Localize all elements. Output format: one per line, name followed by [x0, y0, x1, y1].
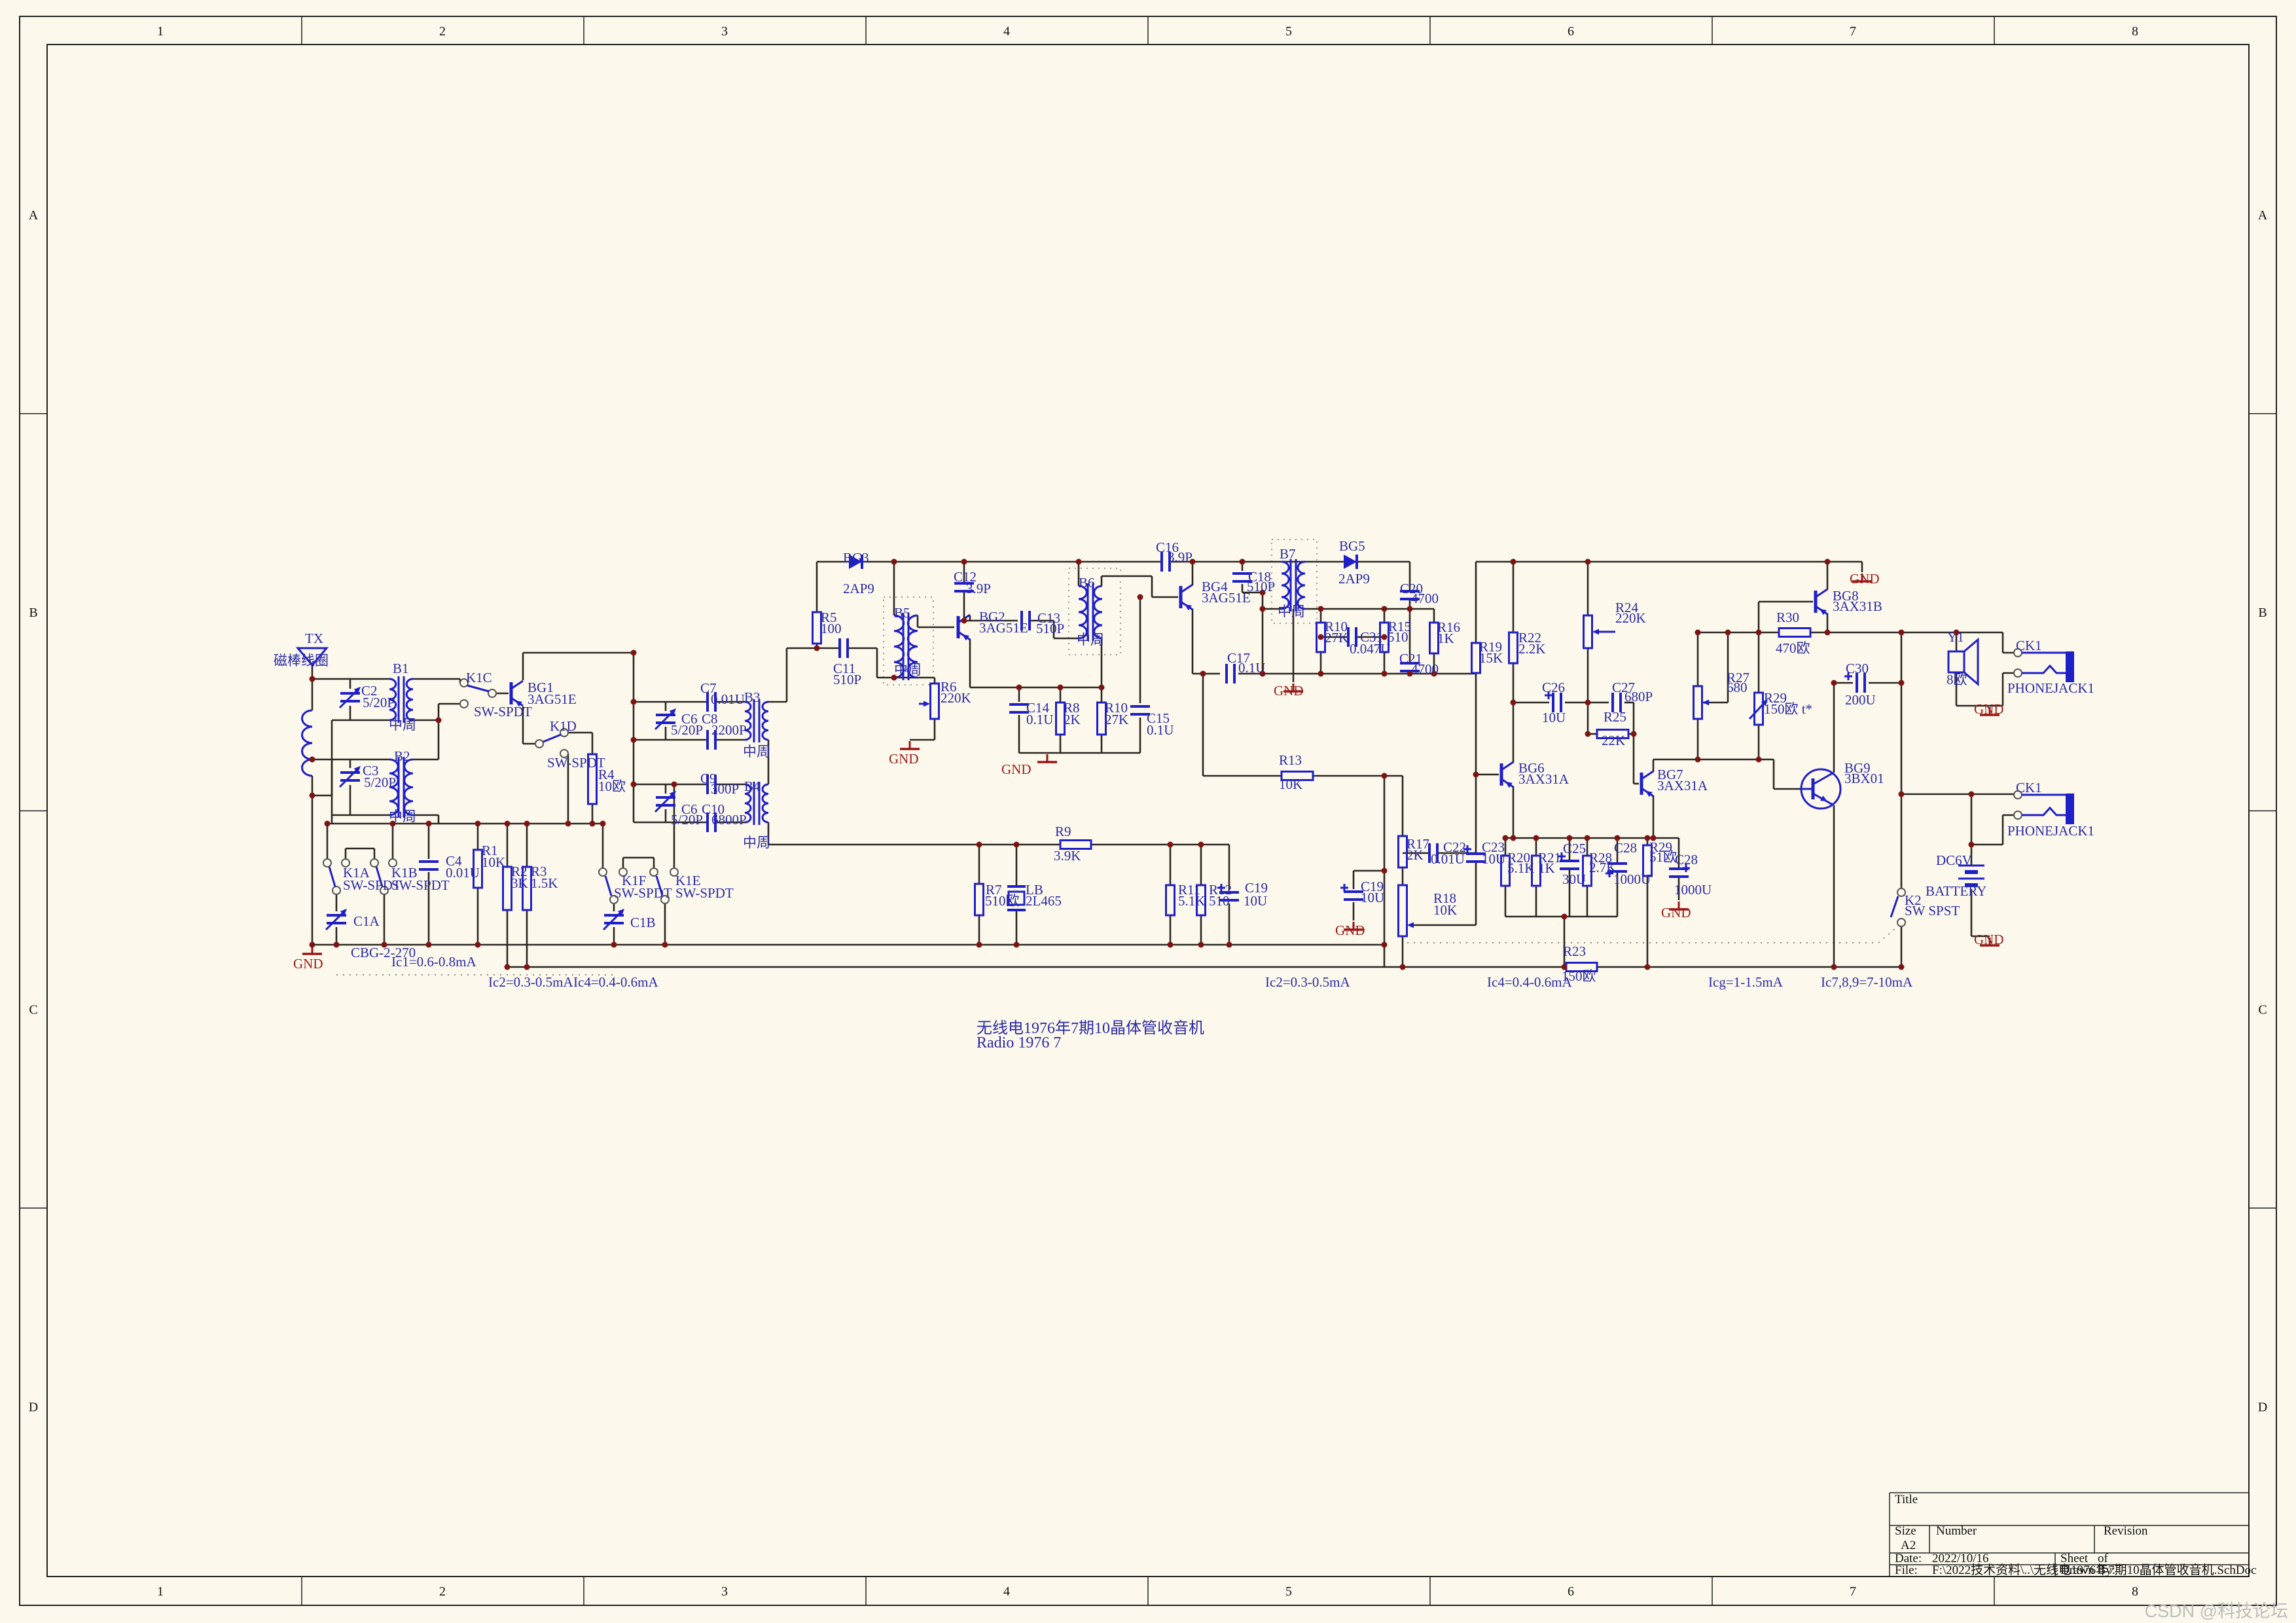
label-1000u-166: 1000U	[1613, 871, 1651, 887]
label-2k-134: 2K	[1407, 847, 1424, 863]
label-b7-91: B7	[1280, 546, 1296, 562]
label-22k-152: 22K	[1602, 733, 1625, 748]
label-中周-56: 中周	[743, 835, 770, 850]
title-block: Title Size A2 Number Revision Date: 2022…	[1895, 1493, 2257, 1577]
label-1k-107: 1K	[1437, 630, 1454, 646]
titleblock-revision-label: Revision	[2104, 1524, 2148, 1538]
label-5-1k-119: 5.1K	[1178, 893, 1205, 909]
zone-col-3: 3	[721, 24, 728, 39]
zone-col-bottom-2: 2	[439, 1584, 446, 1599]
zone-col-8: 8	[2132, 24, 2138, 39]
label-r25-151: R25	[1604, 709, 1626, 725]
label-8欧-186: 8欧	[1946, 672, 1967, 687]
zone-col-bottom-1: 1	[157, 1584, 164, 1599]
label-ic4-0-4-0-6ma-125: Ic4=0.4-0.6mA	[1487, 974, 1572, 990]
zone-row-B: B	[29, 606, 37, 620]
label-10u-131: 10U	[1361, 890, 1384, 905]
label-150欧-127: 150欧	[1562, 968, 1596, 984]
label-3ag51e-69: 3AG51E	[979, 620, 1028, 636]
label-3ag51e-9: 3AG51E	[528, 691, 577, 707]
label-中周-64: 中周	[894, 662, 922, 678]
label-2ap9-94: 2AP9	[1338, 571, 1370, 587]
label-ic2-0-3-0-5ma-124: Ic2=0.3-0.5mA	[1265, 974, 1350, 990]
label-k1d-10: K1D	[550, 718, 577, 734]
label-c25-161: C25	[1563, 841, 1586, 856]
label-2ap9-58: 2AP9	[843, 581, 874, 596]
label-ic4-0-4-0-6ma-35: Ic4=0.4-0.6mA	[573, 974, 658, 990]
component-labels: TX磁棒线圈B1中周C25/20PK1CSW-SPDTBG13AG51EK1DS…	[274, 538, 2094, 990]
label-3-9p-86: 3.9P	[1168, 549, 1193, 565]
label-ic1-0-6-0-8ma-33: Ic1=0.6-0.8mA	[391, 954, 476, 970]
label-磁棒线圈-1: 磁棒线圈	[274, 653, 329, 668]
label-10u-138: 10U	[1482, 851, 1505, 867]
label-2k-79: 2K	[1064, 712, 1081, 727]
label-phonejack1-191: PHONEJACK1	[2007, 823, 2094, 839]
label-150欧-t-175: 150欧 t*	[1764, 701, 1812, 717]
zone-col-5: 5	[1285, 24, 1292, 39]
zone-col-1: 1	[157, 24, 164, 39]
zone-col-7: 7	[1850, 24, 1856, 39]
zone-row-right-A: A	[2258, 208, 2268, 223]
label-680p-150: 680P	[1624, 689, 1653, 704]
label-3bx01-184: 3BX01	[1844, 771, 1884, 786]
label-b5-63: B5	[894, 605, 910, 621]
label-gnd-196: GND	[1974, 932, 2004, 947]
label-3-9p-71: 3.9P	[966, 581, 991, 596]
schematic-caption: 无线电1976年7期10晶体管收音机 Radio 1976 7	[977, 1019, 1204, 1051]
label-3-9k-113: 3.9K	[1054, 848, 1081, 864]
label-中周-3: 中周	[389, 717, 416, 733]
schematic-canvas[interactable]: 1122334455667788AABBCCDD TX磁棒线圈B1中周C25/2…	[0, 0, 2296, 1623]
label-680-173: 680	[1727, 680, 1748, 695]
schematic-page: { "sheet": { "zones_h": ["1","2","3","4"…	[0, 0, 2296, 1623]
label-15k-142: 15K	[1479, 650, 1503, 666]
label-c28-169: C28	[1675, 852, 1698, 867]
label-10u-123: 10U	[1244, 893, 1267, 909]
label-中周-48: 中周	[743, 744, 770, 759]
label-dc6v-192: DC6V	[1936, 852, 1972, 868]
label-tx-0: TX	[305, 630, 323, 646]
label-5-20p-16: 5/20P	[364, 775, 396, 790]
label-b3-47: B3	[744, 689, 761, 705]
label-200u-182: 200U	[1845, 692, 1876, 708]
titleblock-size-value: A2	[1901, 1539, 1916, 1552]
label-phonejack1-188: PHONEJACK1	[2007, 680, 2094, 696]
label-b6-74: B6	[1079, 575, 1095, 591]
label-3ag51e-88: 3AG51E	[1202, 590, 1251, 606]
label-battery-193: BATTERY	[1926, 883, 1986, 899]
zone-col-bottom-8: 8	[2132, 1584, 2138, 1599]
label-1000u-170: 1000U	[1674, 882, 1712, 898]
label-27k-81: 27K	[1105, 712, 1128, 727]
label-c30-181: C30	[1846, 661, 1869, 676]
label-c26-147: C26	[1542, 680, 1565, 695]
caption-line2: Radio 1976 7	[977, 1034, 1061, 1051]
label-k1c-6: K1C	[466, 670, 492, 685]
label-2200p-46: 2200P	[711, 722, 747, 738]
label-1k-160: 1K	[1538, 860, 1555, 876]
label-b2-14: B2	[394, 748, 410, 764]
label-中周-17: 中周	[389, 809, 416, 824]
label-100-60: 100	[821, 621, 842, 636]
label-510-121: 510	[1209, 893, 1230, 909]
zone-col-2: 2	[439, 24, 446, 39]
label-0-047u-101: 0.047U	[1350, 641, 1390, 657]
label-0-01u-136: 0.01U	[1431, 851, 1465, 867]
label-sw-spdt-7: SW-SPDT	[474, 704, 532, 720]
label-c28-165: C28	[1614, 840, 1637, 856]
label-5-20p-5: 5/20P	[363, 695, 395, 710]
label-y1-185: Y1	[1947, 629, 1964, 645]
label-gnd-97: GND	[1274, 683, 1304, 699]
label-gnd-180: GND	[1850, 571, 1880, 587]
label-gnd-67: GND	[889, 751, 919, 767]
label-bg3-57: BG3	[843, 550, 869, 566]
label-gnd-24: GND	[293, 956, 323, 972]
label-3k-30: 3K	[511, 875, 528, 891]
label-0-01u-26: 0.01U	[446, 865, 480, 881]
label-bg5-93: BG5	[1339, 538, 1365, 554]
label-10k-111: 10K	[1279, 776, 1302, 792]
label-30u-162: 30U	[1562, 871, 1586, 887]
label-sw-spdt-37: SW-SPDT	[614, 885, 672, 901]
label-r30-176: R30	[1776, 610, 1799, 625]
label-2-2k-144: 2.2K	[1518, 641, 1545, 657]
zone-row-D: D	[29, 1400, 38, 1414]
label-ic2-0-3-0-5ma-34: Ic2=0.3-0.5mA	[488, 974, 573, 990]
label-ck1-190: CK1	[2016, 780, 2042, 795]
label-51欧-168: 51欧	[1649, 849, 1677, 865]
label-3ax31b-179: 3AX31B	[1833, 598, 1882, 614]
zone-col-bottom-7: 7	[1850, 1584, 1856, 1599]
label-4700-105: 4700	[1411, 591, 1439, 606]
label-中周-75: 中周	[1077, 632, 1104, 647]
label-0-1u-77: 0.1U	[1026, 712, 1053, 727]
titleblock-number-label: Number	[1936, 1524, 1977, 1538]
label-r13-110: R13	[1279, 752, 1302, 768]
titleblock-title-label: Title	[1895, 1493, 1918, 1506]
label-510p-62: 510P	[833, 672, 861, 687]
label-510欧-115: 510欧	[985, 893, 1020, 909]
label-c1a-22: C1A	[353, 913, 380, 929]
zone-col-bottom-6: 6	[1568, 1584, 1574, 1599]
label-gnd-82: GND	[1001, 761, 1031, 777]
titleblock-drawnby-label: Drawn By:	[2060, 1563, 2115, 1577]
zone-col-4: 4	[1003, 24, 1010, 39]
zone-row-A: A	[29, 208, 39, 223]
label-10k-140: 10K	[1433, 902, 1457, 918]
label-icg-1-1-5ma-128: Icg=1-1.5mA	[1708, 974, 1784, 990]
label-sw-spst-195: SW SPST	[1905, 903, 1960, 919]
titleblock-file-label: File:	[1895, 1563, 1918, 1577]
zone-row-right-C: C	[2258, 1003, 2267, 1017]
zone-row-right-B: B	[2258, 606, 2267, 620]
label-5-1k-158: 5.1K	[1507, 860, 1534, 876]
label-sw-spdt-21: SW-SPDT	[391, 877, 450, 893]
label-b4-55: B4	[744, 778, 761, 794]
label-0-01u-42: 0.01U	[711, 691, 745, 707]
label-中周-92: 中周	[1278, 604, 1305, 619]
label-2-7k-164: 2.7K	[1589, 860, 1616, 875]
label-sw-spdt-39: SW-SPDT	[675, 885, 734, 901]
label-4700-109: 4700	[1411, 661, 1439, 677]
label-0-1u-96: 0.1U	[1238, 660, 1265, 676]
label-gnd-132: GND	[1335, 922, 1365, 938]
label-c1b-40: C1B	[630, 915, 656, 930]
label-470欧-177: 470欧	[1776, 640, 1810, 656]
label-10欧-13: 10欧	[598, 778, 626, 794]
label-sw-spdt-11: SW-SPDT	[547, 755, 605, 771]
label-ck1-187: CK1	[2016, 638, 2042, 653]
label-1-5k-32: 1.5K	[531, 875, 558, 891]
label-ic7-8-9-7-10ma-129: Ic7,8,9=7-10mA	[1821, 974, 1913, 990]
zone-row-right-D: D	[2258, 1400, 2267, 1414]
watermark: CSDN @科技论坛	[2145, 1601, 2288, 1621]
label-510p-90: 510P	[1247, 579, 1275, 594]
label-r9-112: R9	[1055, 824, 1071, 839]
label-6800p-54: 6800P	[711, 812, 747, 828]
label-510-103: 510	[1388, 629, 1408, 645]
label-220k-146: 220K	[1615, 610, 1646, 626]
label-3ax31a-154: 3AX31A	[1518, 771, 1570, 787]
label-510p-73: 510P	[1036, 621, 1064, 636]
zone-col-bottom-4: 4	[1003, 1584, 1010, 1599]
label-r23-126: R23	[1563, 943, 1586, 959]
label-0-1u-84: 0.1U	[1147, 722, 1174, 738]
label-5-20p-52: 5/20P	[671, 812, 703, 828]
label-27k-99: 27K	[1325, 630, 1348, 646]
label-300p-50: 300P	[711, 781, 739, 797]
label-gnd-171: GND	[1661, 905, 1691, 921]
zone-row-C: C	[29, 1003, 37, 1017]
label-10u-148: 10U	[1542, 710, 1566, 725]
label-3ax31a-156: 3AX31A	[1657, 778, 1708, 793]
label-gnd-189: GND	[1974, 701, 2004, 717]
titleblock-size-label: Size	[1895, 1524, 1916, 1538]
label-5-20p-44: 5/20P	[671, 722, 703, 738]
label-2l465-117: 2L465	[1026, 893, 1062, 909]
zone-col-6: 6	[1568, 24, 1574, 39]
label-b1-2: B1	[393, 661, 409, 676]
sheet-border: 1122334455667788AABBCCDD	[20, 16, 2276, 1605]
zone-col-bottom-3: 3	[721, 1584, 728, 1599]
zone-col-bottom-5: 5	[1285, 1584, 1292, 1599]
label-220k-66: 220K	[941, 690, 971, 706]
label-10k-28: 10K	[482, 854, 505, 870]
